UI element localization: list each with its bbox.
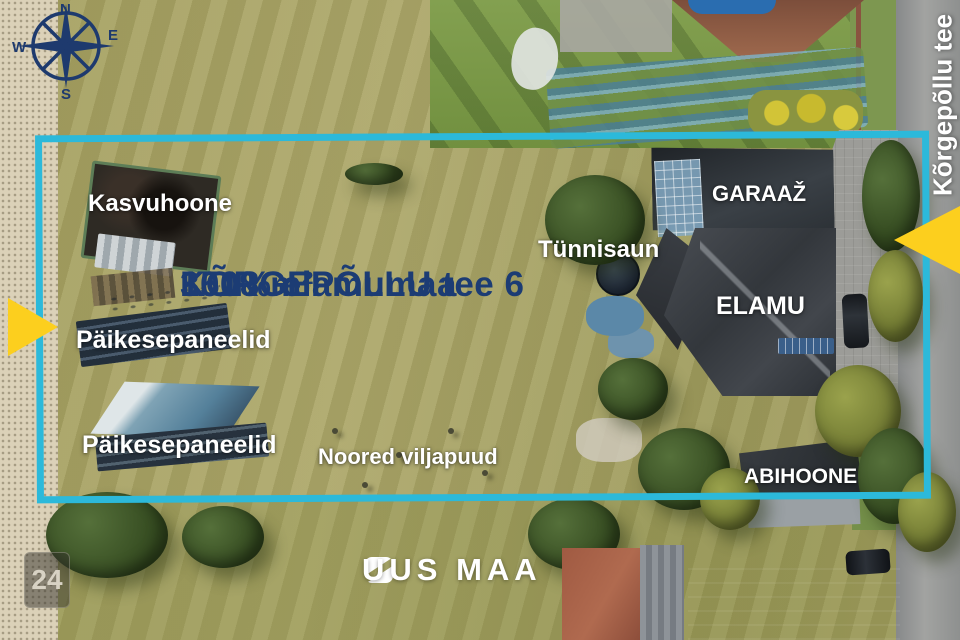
outbuilding-annex xyxy=(748,496,861,528)
compass-east-label: E xyxy=(108,27,118,44)
trampoline xyxy=(688,0,776,14)
label-solar-panels-1: Päikesepaneelid xyxy=(76,326,271,355)
compass-north-label: N xyxy=(60,1,71,18)
photo-number-badge: 24 xyxy=(24,552,70,608)
parked-car-bottom xyxy=(845,548,891,575)
street-name-vertical: Kõrgepõllu tee xyxy=(928,14,959,196)
label-greenhouse: Kasvuhoone xyxy=(88,190,232,218)
agency-logo-text: UUS MAA xyxy=(362,552,542,588)
label-solar-panels-2: Päikesepaneelid xyxy=(82,431,277,460)
label-house: ELAMU xyxy=(716,292,805,321)
tree xyxy=(182,506,264,568)
compass-rose-icon: N E S W xyxy=(10,0,122,100)
property-zoning: 100% elamumaa xyxy=(180,262,457,307)
neighbor-house-roof-bottom xyxy=(562,548,642,640)
label-orchard: Noored viljapuud xyxy=(318,444,498,470)
compass-south-label: S xyxy=(61,86,71,100)
compass-west-label: W xyxy=(12,39,27,56)
boundary-arrow-west-icon xyxy=(8,298,58,356)
label-sauna: Tünnisaun xyxy=(538,236,659,264)
label-outbuilding: ABIHOONE xyxy=(744,465,857,489)
aerial-listing-image: N E S W Kasvuhoone Päikesepaneelid Päike… xyxy=(0,0,960,640)
neighbor-garage-roof-bottom xyxy=(640,545,684,640)
label-garage: GARAAŽ xyxy=(712,181,806,207)
boundary-arrow-east-icon xyxy=(894,206,960,274)
yellow-shrubs xyxy=(748,90,863,136)
neighbor-paving xyxy=(560,0,672,52)
